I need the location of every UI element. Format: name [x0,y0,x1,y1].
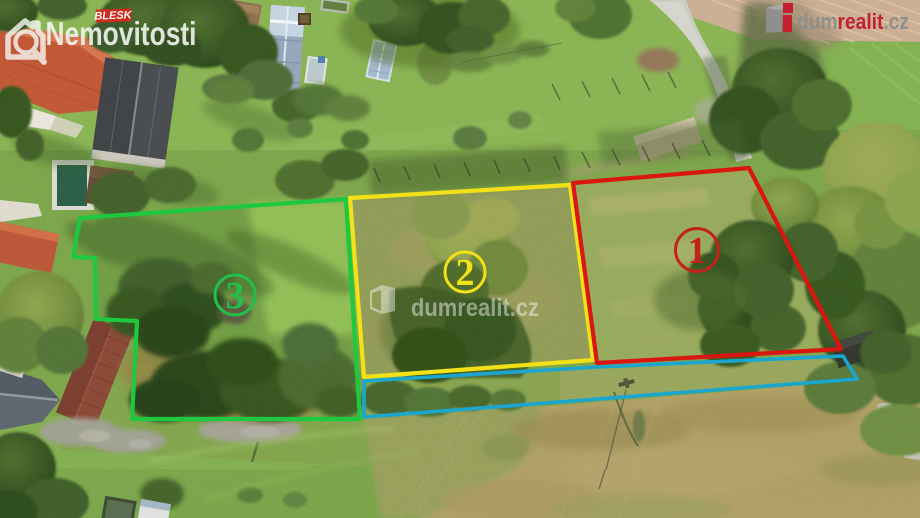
svg-text:dumrealit.cz: dumrealit.cz [411,294,539,322]
svg-text:1: 1 [688,230,707,272]
svg-text:3: 3 [226,275,245,317]
svg-text:Nemovitosti: Nemovitosti [46,15,197,52]
svg-text:dumrealit.cz: dumrealit.cz [797,9,909,34]
svg-text:2: 2 [456,252,475,294]
